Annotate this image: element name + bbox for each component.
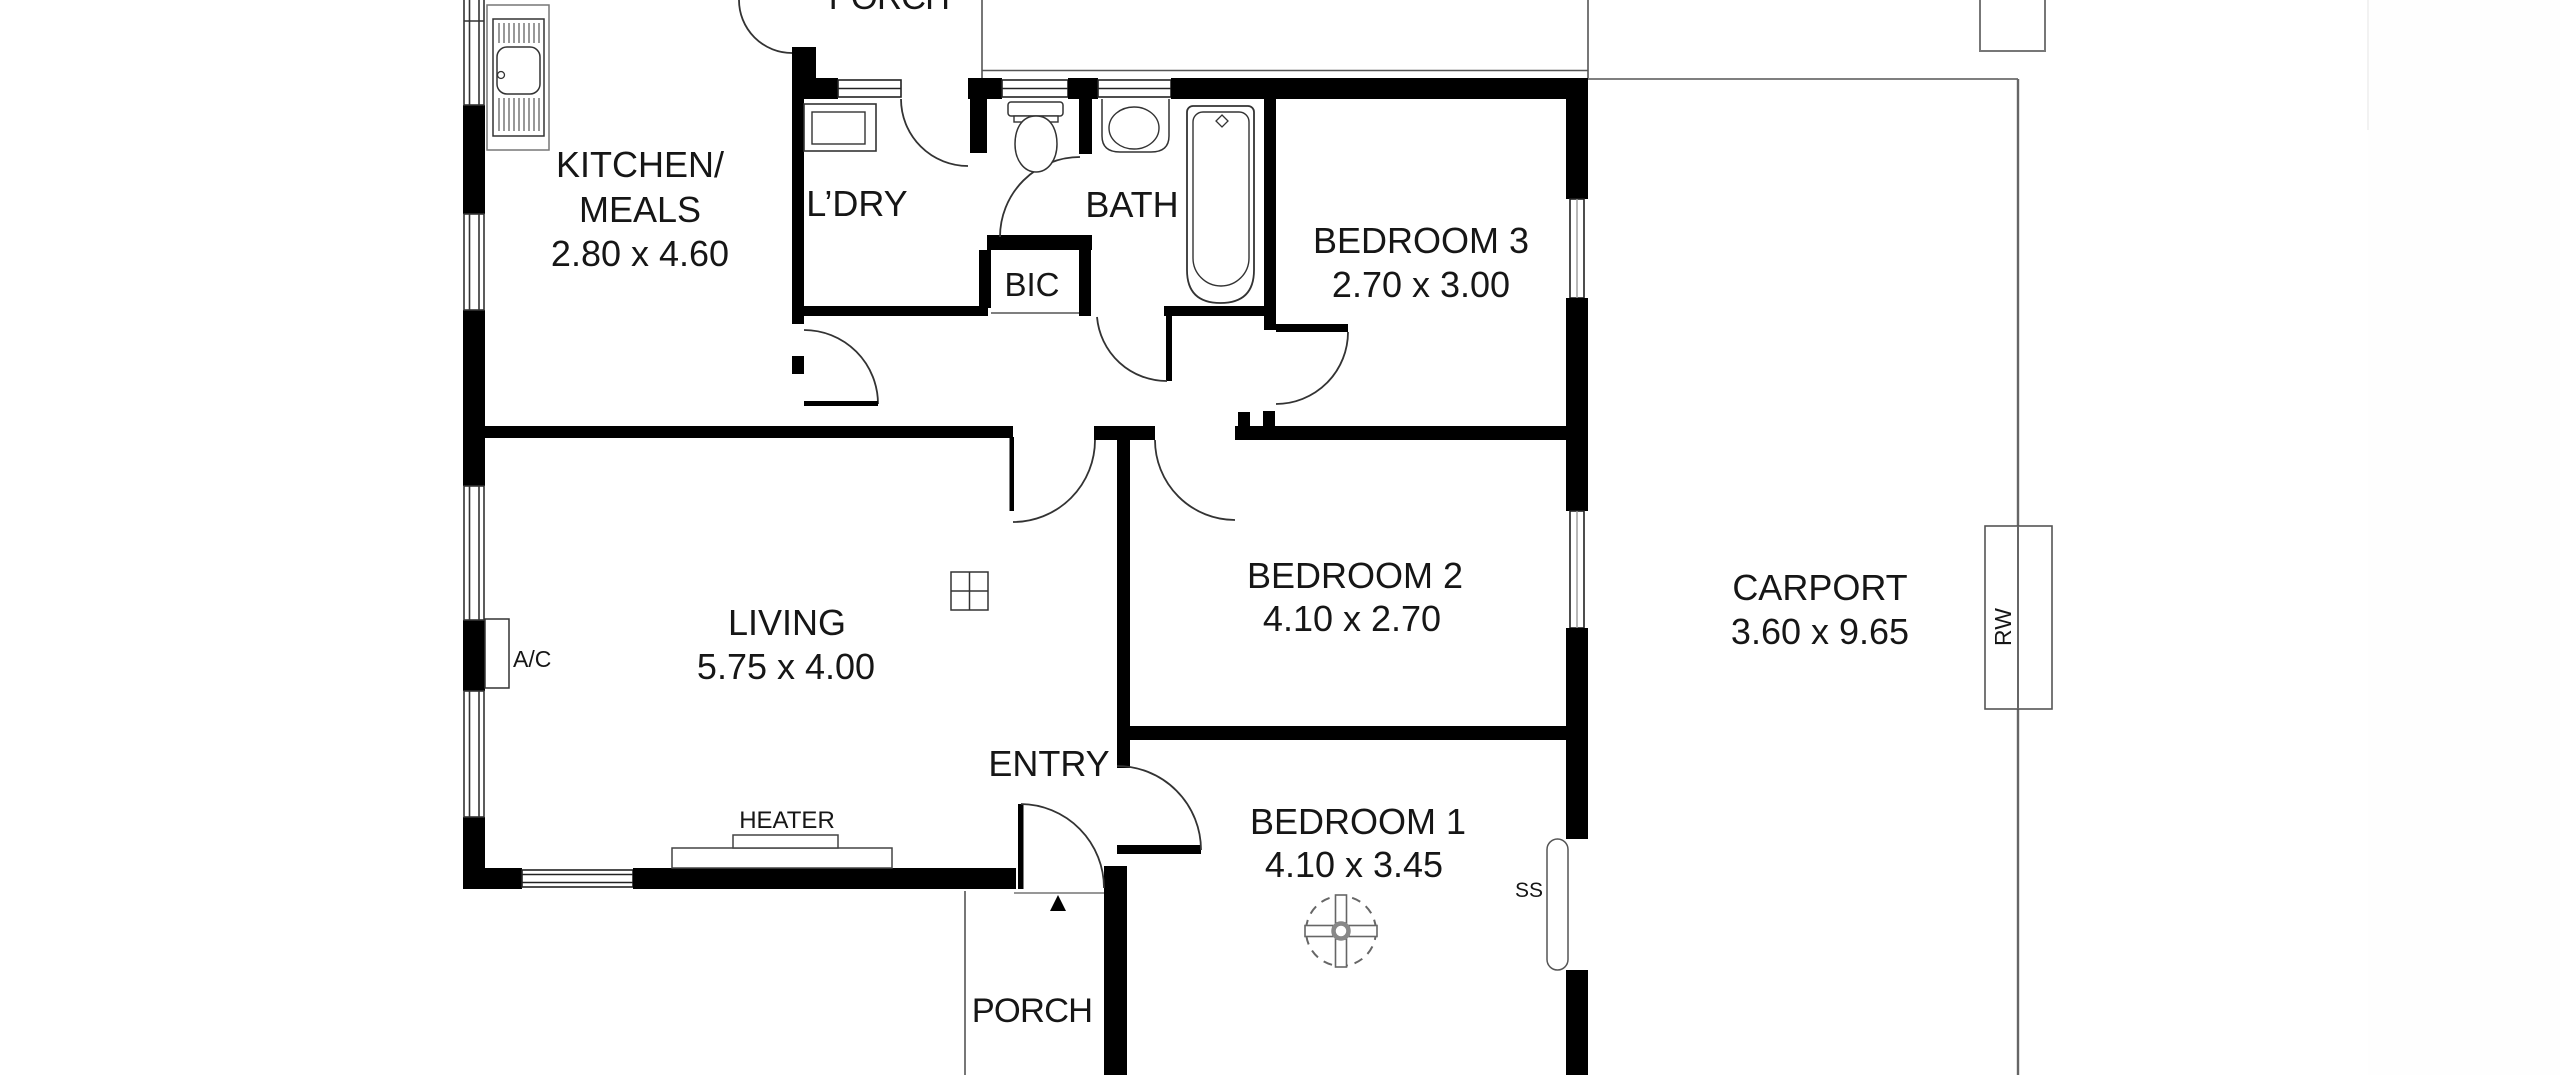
- svg-text:5.75 x 4.00: 5.75 x 4.00: [697, 646, 875, 687]
- svg-text:SS: SS: [1515, 879, 1543, 902]
- svg-text:BEDROOM 2: BEDROOM 2: [1247, 555, 1463, 596]
- svg-text:4.10 x 2.70: 4.10 x 2.70: [1263, 598, 1441, 639]
- svg-text:2.70 x 3.00: 2.70 x 3.00: [1332, 264, 1510, 305]
- svg-text:LIVING: LIVING: [728, 602, 846, 643]
- svg-text:4.10 x 3.45: 4.10 x 3.45: [1265, 844, 1443, 885]
- svg-text:MEALS: MEALS: [579, 189, 701, 230]
- svg-text:2.80 x 4.60: 2.80 x 4.60: [551, 233, 729, 274]
- svg-text:BATH: BATH: [1085, 184, 1178, 225]
- svg-text:BIC: BIC: [1004, 266, 1059, 303]
- svg-text:BEDROOM 3: BEDROOM 3: [1313, 220, 1529, 261]
- svg-text:L’DRY: L’DRY: [806, 183, 907, 224]
- svg-text:BEDROOM 1: BEDROOM 1: [1250, 801, 1466, 842]
- svg-text:PORCH: PORCH: [829, 0, 950, 17]
- svg-text:HEATER: HEATER: [739, 807, 835, 834]
- svg-text:KITCHEN/: KITCHEN/: [556, 144, 724, 185]
- svg-text:CARPORT: CARPORT: [1732, 567, 1907, 608]
- svg-text:A/C: A/C: [513, 646, 551, 672]
- svg-text:ENTRY: ENTRY: [988, 743, 1109, 784]
- svg-text:RW: RW: [1990, 608, 2016, 646]
- svg-text:3.60 x 9.65: 3.60 x 9.65: [1731, 611, 1909, 652]
- svg-text:PORCH: PORCH: [972, 992, 1093, 1030]
